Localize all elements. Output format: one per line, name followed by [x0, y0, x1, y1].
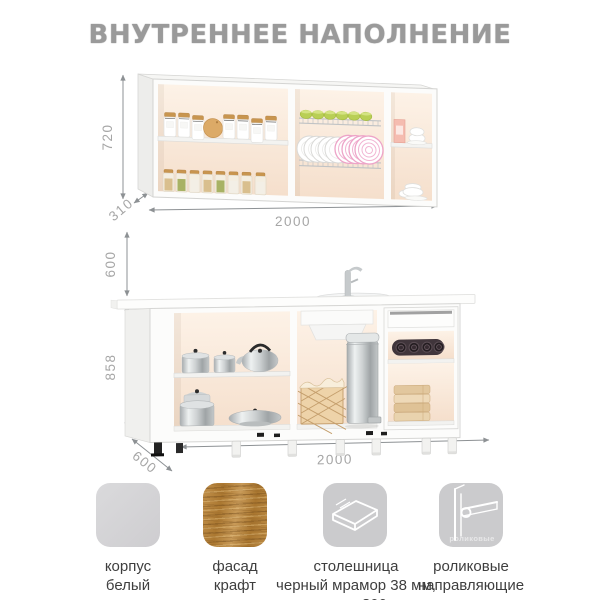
- feature-label-guides: роликовые направляющие: [388, 557, 554, 595]
- page-title: ВНУТРЕННЕЕ НАПОЛНЕНИЕ: [0, 20, 600, 50]
- dim-label: 310: [106, 195, 136, 224]
- dim-label: 2000: [317, 452, 353, 468]
- wall-cabinet-figure: 720 310 2000: [95, 57, 505, 235]
- pink-plates: [335, 135, 383, 165]
- dim-gap-height: 600: [103, 232, 127, 296]
- dim-base-height: 858: [103, 305, 127, 428]
- dim-label: 720: [100, 123, 115, 150]
- wall-cabinet-illustration: [138, 74, 437, 207]
- dim-base-depth: 600: [130, 439, 172, 477]
- dim-wall-height: 720: [100, 75, 123, 199]
- base-cabinet-figure: 600 858 600 2000: [95, 228, 505, 482]
- countertop-icon: [323, 483, 387, 547]
- roller-guides-icon: роликовые: [439, 483, 503, 547]
- dim-label: 600: [103, 250, 118, 277]
- folded-towels: [394, 385, 430, 421]
- dim-base-width: 2000: [181, 440, 489, 467]
- white-swatch: [96, 483, 160, 547]
- cutting-board: [204, 118, 223, 138]
- page: ВНУТРЕННЕЕ НАПОЛНЕНИЕ: [0, 0, 600, 600]
- dim-label: 2000: [275, 214, 311, 229]
- dim-label: 858: [103, 353, 118, 380]
- base-cabinet-illustration: [111, 265, 475, 459]
- countertop-glyph: [323, 483, 387, 547]
- dim-wall-width: 2000: [149, 206, 437, 229]
- trash-can: [345, 333, 381, 429]
- wood-swatch: [203, 483, 267, 547]
- drawer: [388, 310, 454, 328]
- icon-caption: роликовые: [449, 534, 494, 543]
- pedal: [368, 417, 381, 423]
- wine-rack: [388, 331, 454, 364]
- dim-wall-depth: 310: [106, 193, 148, 224]
- roller-guides-glyph: роликовые: [439, 483, 503, 547]
